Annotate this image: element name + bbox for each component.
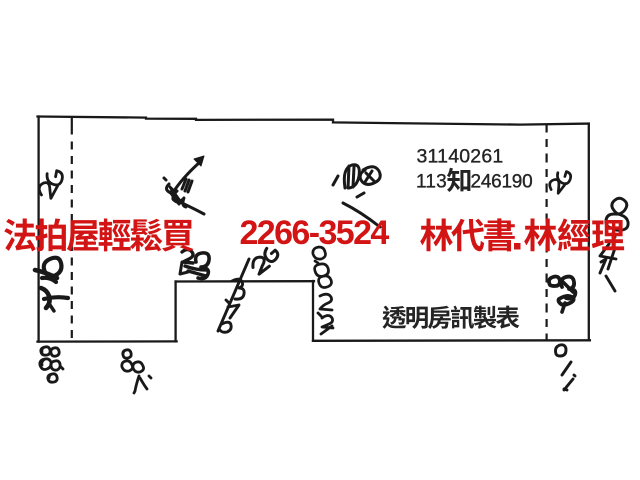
- svg-text:113: 113: [416, 172, 447, 193]
- svg-text:2266-3524: 2266-3524: [240, 214, 390, 252]
- svg-text:246190: 246190: [471, 172, 533, 193]
- svg-text:31140261: 31140261: [417, 146, 504, 168]
